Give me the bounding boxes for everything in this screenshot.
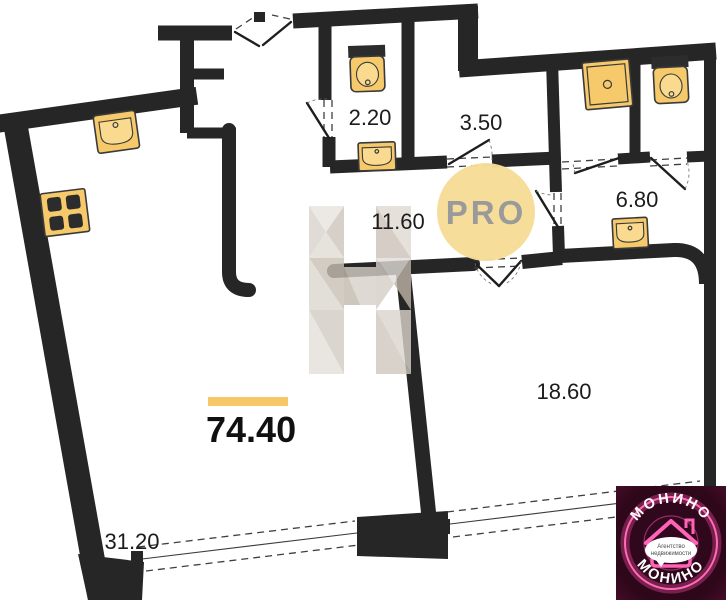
bottom-wall-block	[357, 511, 448, 559]
total-area: 74.40	[206, 397, 296, 450]
stove-icon	[40, 189, 90, 237]
wall-washroom-bottom	[560, 250, 706, 284]
label-living-area: 31.20	[104, 529, 159, 554]
wall-living-bedroom-divider	[403, 270, 429, 517]
label-bedroom-area: 18.60	[536, 379, 591, 404]
toilet-icon	[348, 45, 387, 92]
fixtures	[40, 45, 690, 249]
total-area-bar	[208, 397, 288, 406]
agency-logo: МОНИНО МОНИНО Агентство недвижимости	[616, 486, 726, 600]
toilet-icon	[651, 55, 690, 104]
label-storage-area: 3.50	[460, 110, 503, 135]
label-bathroom-area: 2.20	[349, 105, 392, 130]
kitchen-sink-icon	[93, 110, 140, 153]
floor-plan-svg: PRO 2.20 3.50 11.60 6.80 18.60 31.20 74.…	[0, 0, 726, 600]
door-storage	[447, 140, 492, 167]
door-bathroom	[307, 99, 332, 138]
door-washroom	[536, 191, 561, 227]
wall-stub-right	[687, 156, 710, 157]
logo-subtitle-line2: недвижимости	[651, 551, 692, 557]
door-toilet-room	[650, 158, 689, 189]
entrance-door-icon	[235, 12, 291, 46]
window-living	[131, 521, 359, 571]
label-washroom-area: 6.80	[616, 187, 659, 212]
wall-corridor-bottom-right	[522, 258, 562, 262]
wash-sink-icon	[612, 217, 649, 249]
shower-tray-icon	[582, 59, 633, 110]
wall-stub-mid	[618, 157, 650, 159]
hand-sink-icon	[358, 142, 396, 171]
pro-badge: PRO	[437, 163, 535, 261]
wall-shower-left	[552, 60, 556, 192]
floor-plan-page: PRO 2.20 3.50 11.60 6.80 18.60 31.20 74.…	[0, 0, 726, 600]
label-hallway-area: 11.60	[371, 209, 424, 234]
door-shower	[562, 158, 619, 173]
door-bedroom-double	[474, 258, 521, 286]
wall-corridor-top-right	[492, 158, 557, 161]
wall-corridor-left	[229, 130, 249, 290]
window-post	[440, 519, 450, 534]
logo-subtitle-line1: Агентство	[657, 544, 685, 550]
pro-badge-label: PRO	[446, 194, 527, 231]
total-area-value: 74.40	[206, 409, 296, 450]
